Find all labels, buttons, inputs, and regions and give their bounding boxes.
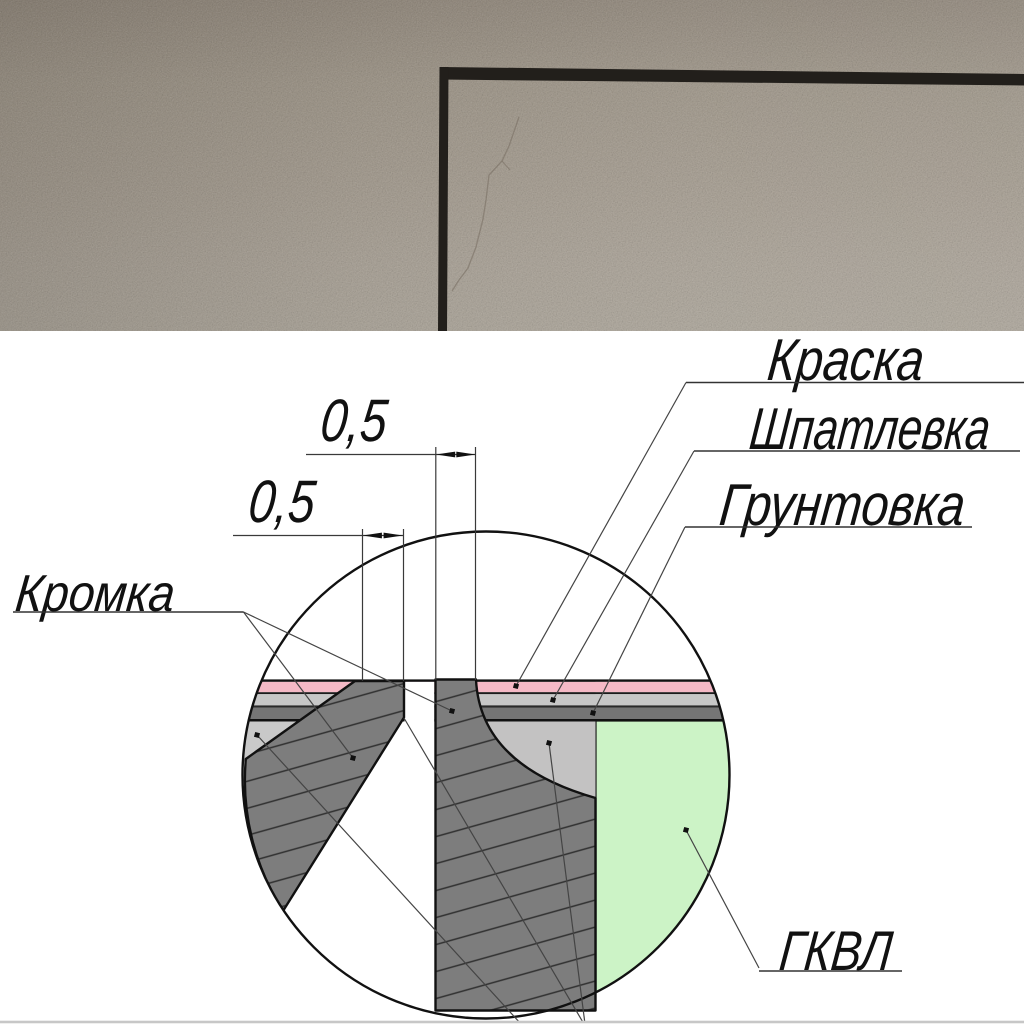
svg-text:Шпатлевка: Шпатлевка [747, 395, 994, 462]
svg-text:Кромка: Кромка [13, 565, 178, 623]
svg-text:Грунтовка: Грунтовка [717, 471, 969, 538]
svg-text:0,5: 0,5 [246, 468, 319, 535]
svg-text:0,5: 0,5 [318, 387, 391, 454]
svg-text:ГКВЛ: ГКВЛ [777, 919, 896, 982]
